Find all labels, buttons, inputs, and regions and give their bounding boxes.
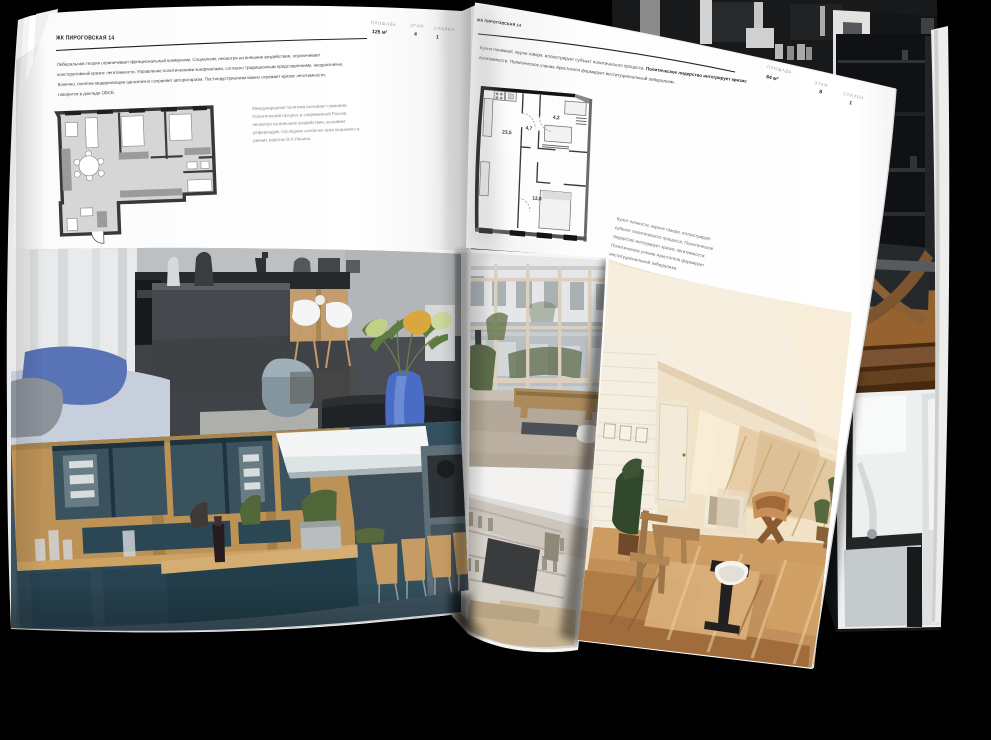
svg-text:4,7: 4,7 [525,125,532,132]
svg-text:125 м²: 125 м² [372,29,388,36]
svg-text:4,2: 4,2 [553,115,560,122]
svg-text:12,8: 12,8 [532,195,542,202]
svg-text:ЭТАЖ: ЭТАЖ [410,23,425,29]
svg-text:ЖК ПИРОГОВСКАЯ 14: ЖК ПИРОГОВСКАЯ 14 [55,36,114,42]
svg-text:23,5: 23,5 [502,129,512,136]
